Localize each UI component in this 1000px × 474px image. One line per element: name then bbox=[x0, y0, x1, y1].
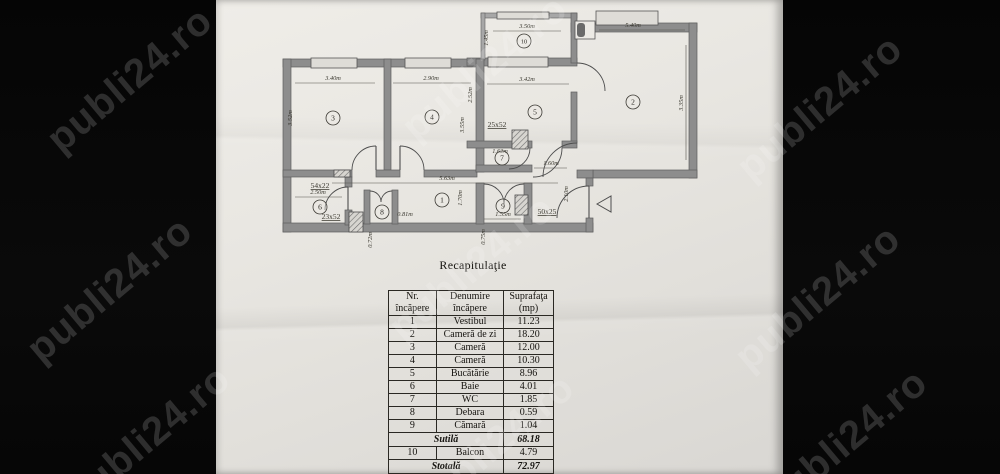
cell-room-name: Cameră bbox=[436, 342, 503, 355]
dimension-label: 0.72m bbox=[367, 232, 374, 248]
dimension-label: 3.40m bbox=[324, 75, 341, 82]
cell-room-name: Balcon bbox=[436, 447, 503, 460]
window bbox=[405, 58, 451, 68]
cell-room-number: 6 bbox=[389, 381, 437, 394]
room-number: 10 bbox=[521, 39, 527, 46]
cell-room-number: 10 bbox=[389, 447, 437, 460]
cell-summary-label: Stotală bbox=[389, 460, 504, 474]
table-row: 6Baie4.01 bbox=[389, 381, 554, 394]
entrance-arrow-icon bbox=[597, 196, 611, 212]
cell-room-area: 18.20 bbox=[504, 329, 554, 342]
header-nr: Nr. încăpere bbox=[389, 291, 437, 316]
table-row: Sutilă68.18 bbox=[389, 433, 554, 447]
dimension-label: 50x25 bbox=[538, 207, 557, 216]
cell-room-name: WC bbox=[436, 394, 503, 407]
balcony-window bbox=[497, 12, 549, 19]
table-row: 4Cameră10.30 bbox=[389, 355, 554, 368]
table-header-row: Nr. încăpere Denumire încăpere Suprafaţa… bbox=[389, 291, 554, 316]
cell-room-area: 1.85 bbox=[504, 394, 554, 407]
dimension-label: 5.40m bbox=[625, 22, 641, 29]
dimension-label: 3.52m bbox=[287, 110, 294, 127]
cell-room-number: 1 bbox=[389, 316, 437, 329]
room-number: 4 bbox=[430, 113, 434, 122]
cell-room-number: 3 bbox=[389, 342, 437, 355]
table-row: 8Debara0.59 bbox=[389, 407, 554, 420]
cell-room-number: 2 bbox=[389, 329, 437, 342]
cell-room-area: 1.04 bbox=[504, 420, 554, 433]
cell-room-name: Bucătărie bbox=[436, 368, 503, 381]
dimension-label: 3.50m bbox=[518, 23, 535, 30]
cell-summary-label: Sutilă bbox=[389, 433, 504, 447]
cell-room-area: 12.00 bbox=[504, 342, 554, 355]
room-number: 3 bbox=[331, 114, 335, 123]
cell-room-number: 7 bbox=[389, 394, 437, 407]
dimension-label: 5.63m bbox=[439, 175, 455, 182]
table-row: 10Balcon4.79 bbox=[389, 447, 554, 460]
dimension-label: 3.35m bbox=[678, 95, 685, 112]
dimension-label: 2.50m bbox=[310, 189, 326, 196]
cell-room-number: 8 bbox=[389, 407, 437, 420]
dimension-label: 23x52 bbox=[322, 212, 341, 221]
cell-room-area: 10.30 bbox=[504, 355, 554, 368]
dimension-label: 3.42m bbox=[518, 76, 535, 83]
cell-room-number: 4 bbox=[389, 355, 437, 368]
dimension-label: 1.45m bbox=[483, 30, 490, 46]
dimension-label: 1.70m bbox=[457, 190, 464, 206]
cell-room-number: 9 bbox=[389, 420, 437, 433]
room-number: 1 bbox=[440, 196, 444, 205]
table-row: 1Vestibul11.23 bbox=[389, 316, 554, 329]
table-row: 2Cameră de zi18.20 bbox=[389, 329, 554, 342]
photo-of-floor-plan-document: 3.40m3.52m2.90m3.55m2.52m3.42m5.40m3.35m… bbox=[0, 0, 1000, 474]
cell-room-number: 5 bbox=[389, 368, 437, 381]
window bbox=[488, 57, 548, 67]
cell-room-name: Cameră bbox=[436, 355, 503, 368]
cell-room-area: 68.18 bbox=[504, 433, 554, 447]
room-number: 9 bbox=[501, 202, 505, 211]
room-area-table: Nr. încăpere Denumire încăpere Suprafaţa… bbox=[388, 290, 554, 474]
table-row: 7WC1.85 bbox=[389, 394, 554, 407]
cell-room-area: 11.23 bbox=[504, 316, 554, 329]
recap-section: Recapitulaţie Nr. încăpere Denumire încă… bbox=[388, 258, 558, 474]
cell-room-name: Cameră de zi bbox=[436, 329, 503, 342]
cell-room-area: 72.97 bbox=[504, 460, 554, 474]
room-number: 2 bbox=[631, 98, 635, 107]
cell-room-name: Debara bbox=[436, 407, 503, 420]
room-number: 6 bbox=[318, 203, 322, 212]
table-row: Stotală72.97 bbox=[389, 460, 554, 474]
cell-room-area: 4.79 bbox=[504, 447, 554, 460]
dimension-label: 25x52 bbox=[488, 120, 507, 129]
table-row: 3Cameră12.00 bbox=[389, 342, 554, 355]
dimension-label: 2.52m bbox=[467, 87, 474, 103]
window bbox=[311, 58, 357, 68]
header-suprafata: Suprafaţa (mp) bbox=[504, 291, 554, 316]
dimension-label: 1.60m bbox=[543, 160, 559, 167]
cell-room-name: Baie bbox=[436, 381, 503, 394]
cell-room-area: 0.59 bbox=[504, 407, 554, 420]
dimension-label: 3.55m bbox=[459, 117, 466, 134]
cell-room-name: Vestibul bbox=[436, 316, 503, 329]
room-number: 5 bbox=[533, 108, 537, 117]
header-denumire: Denumire încăpere bbox=[436, 291, 503, 316]
table-row: 5Bucătărie8.96 bbox=[389, 368, 554, 381]
cell-room-area: 8.96 bbox=[504, 368, 554, 381]
recap-title: Recapitulaţie bbox=[388, 258, 558, 273]
room-number: 8 bbox=[380, 208, 384, 217]
dimension-label: 2.90m bbox=[423, 75, 439, 82]
column bbox=[577, 23, 585, 37]
table-row: 9Cămară1.04 bbox=[389, 420, 554, 433]
dimension-label: 0.75m bbox=[480, 229, 487, 245]
room-number: 7 bbox=[500, 154, 504, 163]
dimension-label: 0.81m bbox=[397, 211, 413, 218]
dimension-label: 2.10m bbox=[563, 186, 570, 202]
cell-room-name: Cămară bbox=[436, 420, 503, 433]
cell-room-area: 4.01 bbox=[504, 381, 554, 394]
